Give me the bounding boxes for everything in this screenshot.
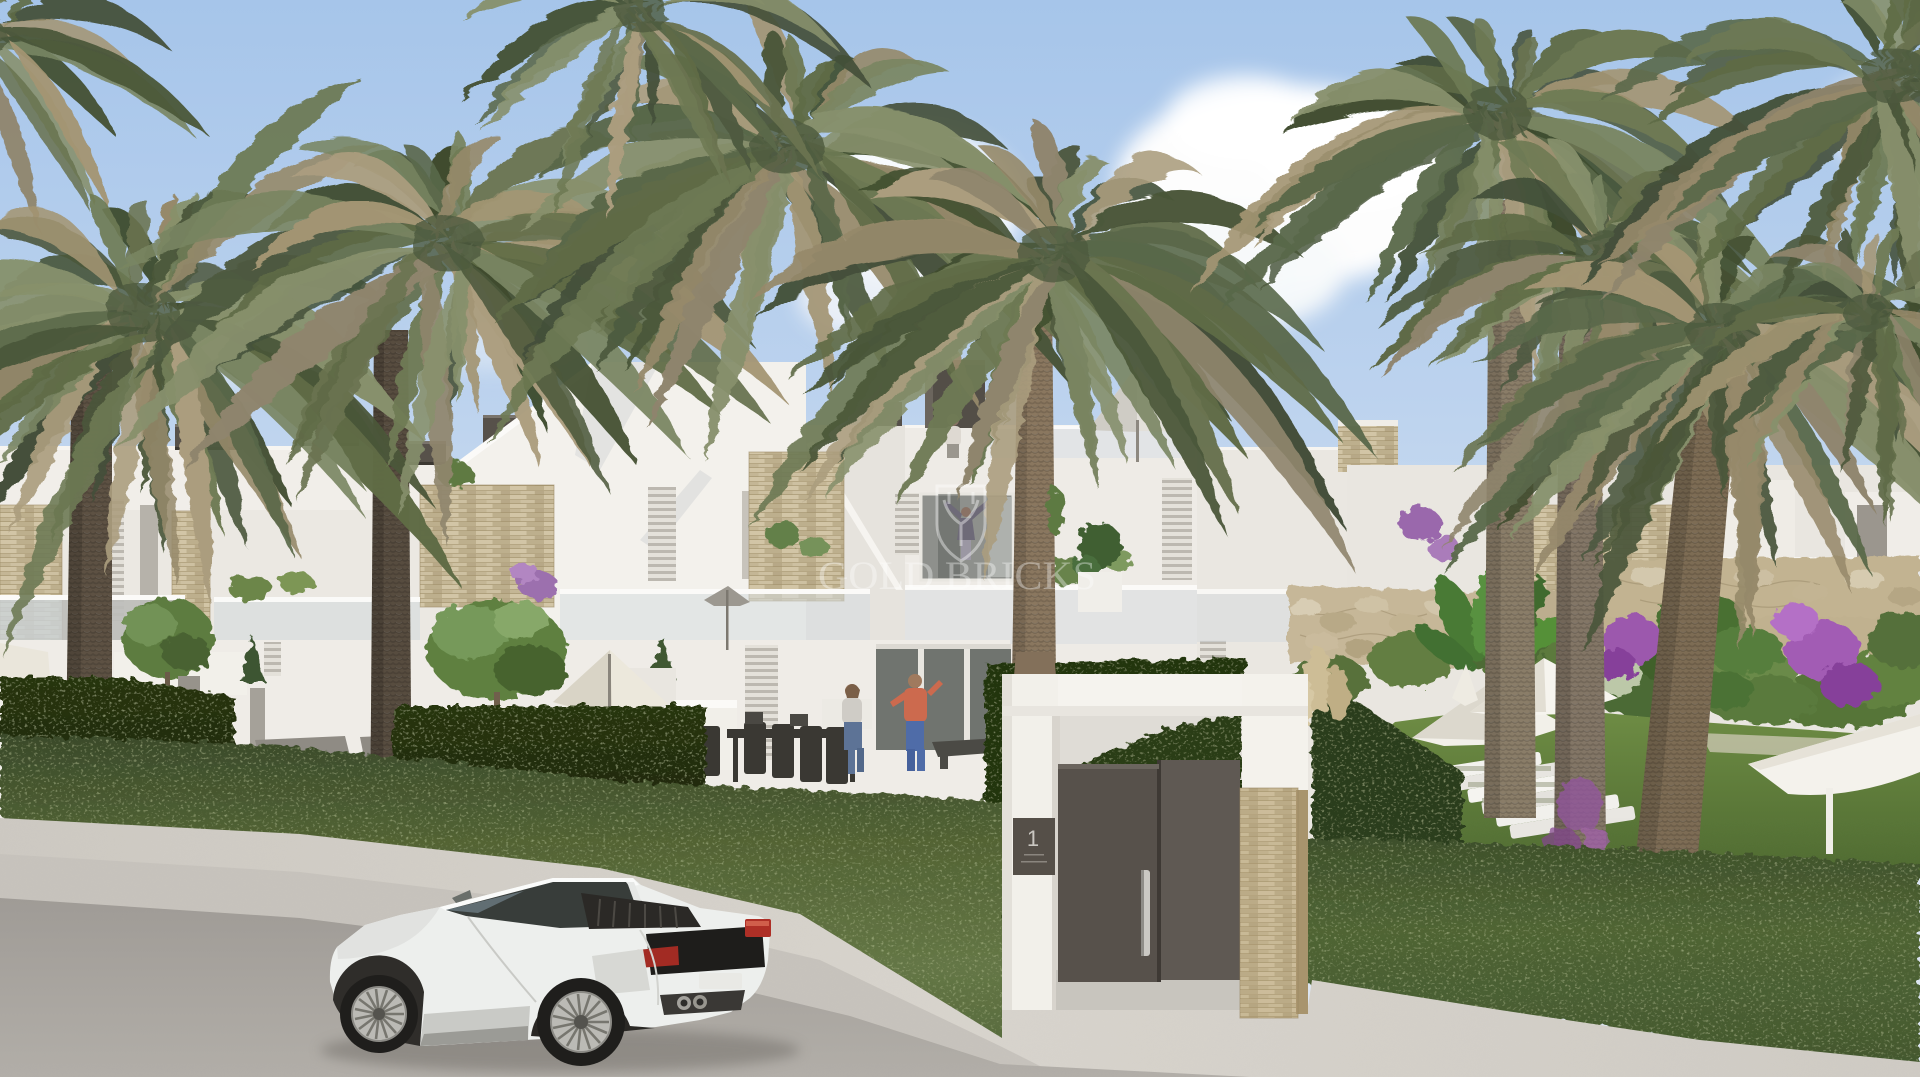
svg-text:GOLD BRICKS: GOLD BRICKS	[818, 553, 1096, 598]
svg-text:1: 1	[1027, 826, 1039, 851]
